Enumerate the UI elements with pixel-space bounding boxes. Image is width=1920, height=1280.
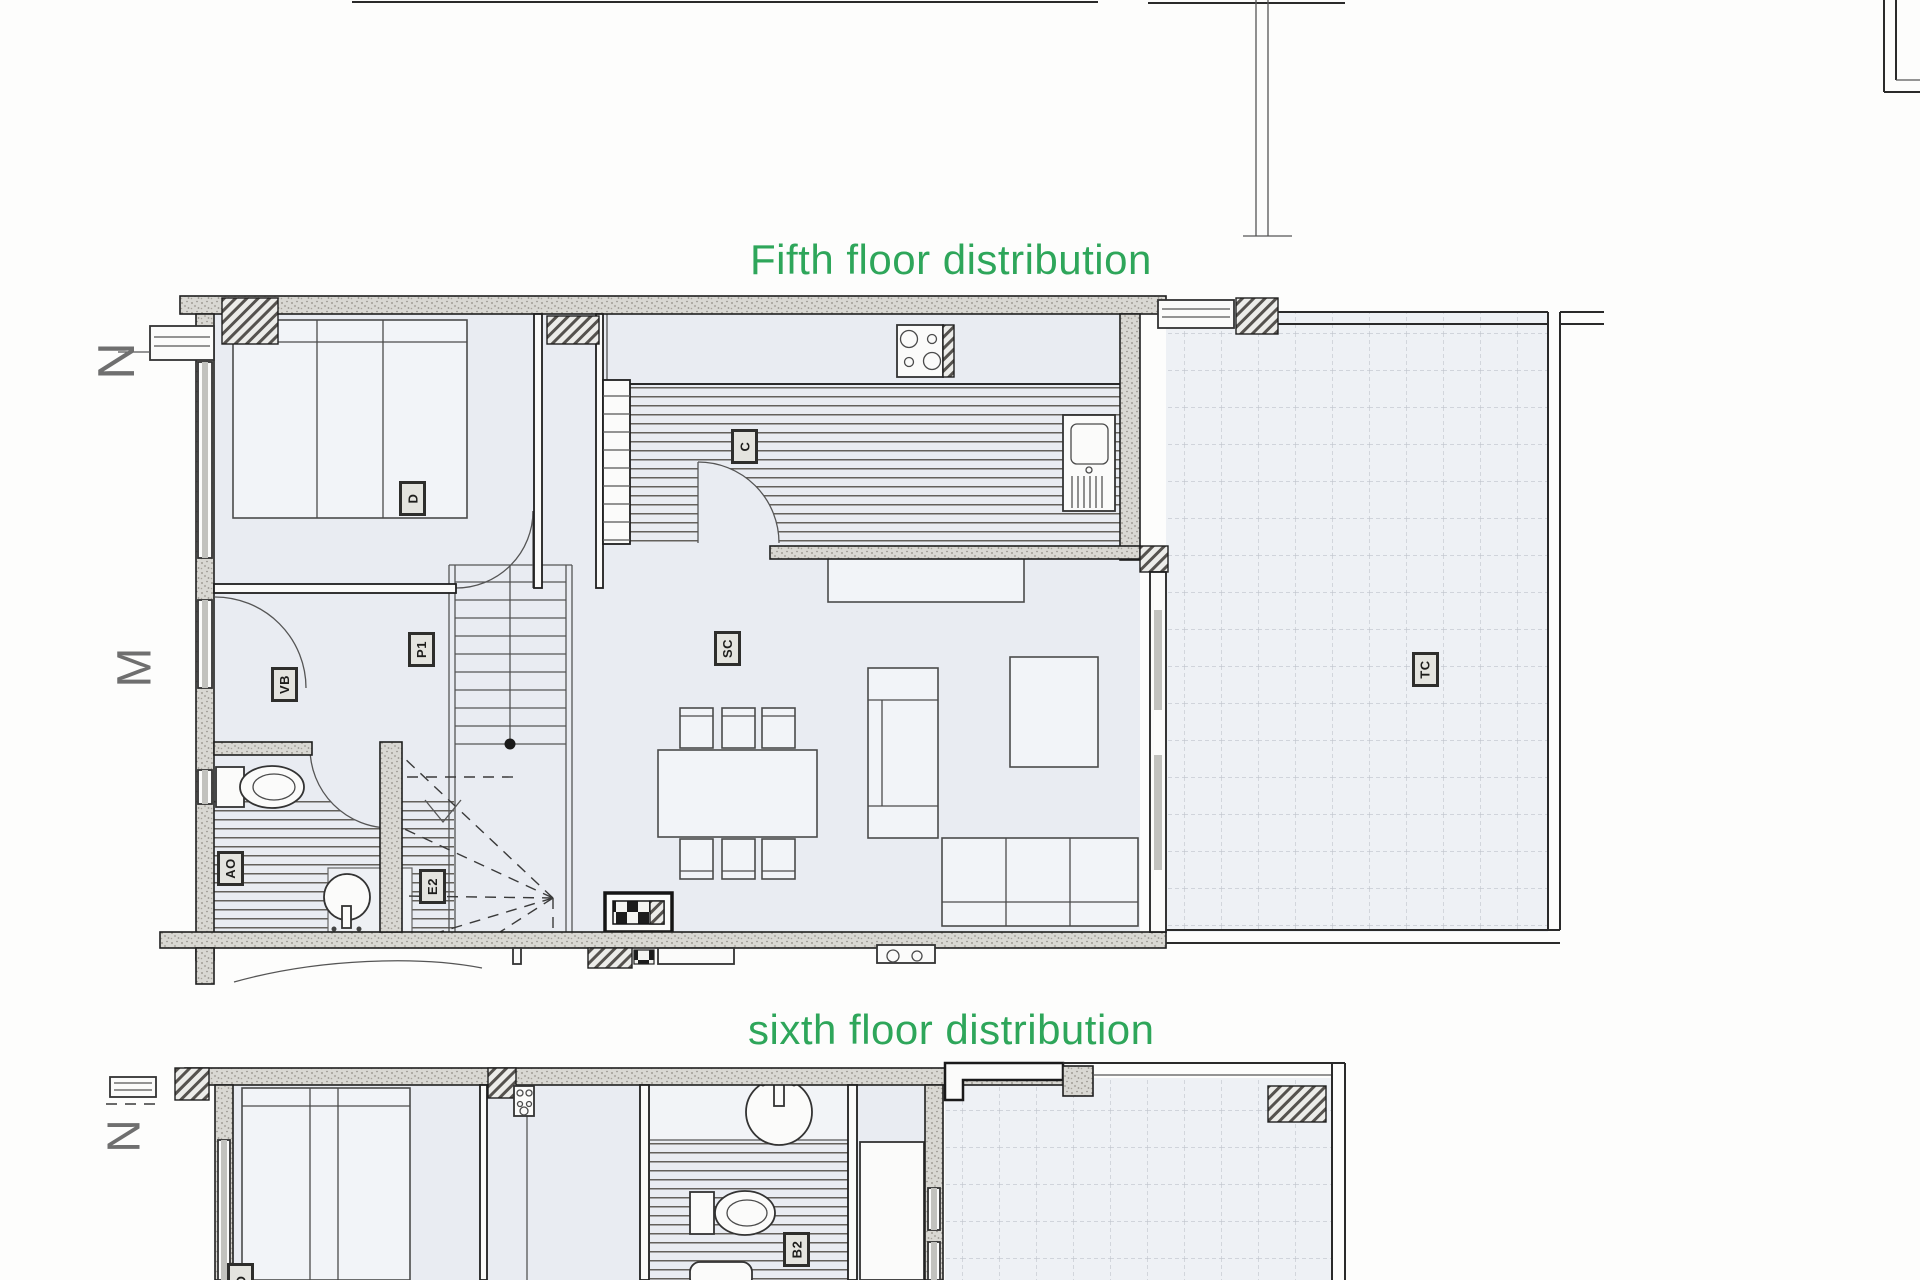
sixth-window-sill <box>106 1077 162 1104</box>
sixth-sink-icon <box>690 1262 752 1280</box>
kitchen-floor-boards <box>607 386 1120 544</box>
corridor-wall <box>596 314 603 588</box>
bedroom-bottom-wall <box>214 584 456 593</box>
sixth-floor-title: sixth floor distribution <box>748 1006 1155 1054</box>
meter-box-icon <box>514 1086 534 1116</box>
scanned-floorplan-page: Fifth floor distribution sixth floor dis… <box>0 0 1920 1280</box>
side-table <box>1010 657 1098 767</box>
terrace-window-sill <box>1158 300 1234 328</box>
sixth-bathroom <box>650 1079 848 1280</box>
kitchen-right-wall <box>1120 314 1140 560</box>
left-window-sill <box>118 326 214 360</box>
bedroom-right-wall <box>534 314 542 588</box>
sixth-floor-plan <box>106 1063 1345 1280</box>
bathroom-left-wall <box>640 1085 649 1280</box>
washing-machine-icon <box>746 1079 812 1145</box>
sixth-top-wall <box>185 1068 1075 1085</box>
corner-hatch-block <box>222 298 278 344</box>
double-bed <box>233 320 467 518</box>
fifth-top-wall <box>180 296 1166 314</box>
stairwell-wall <box>380 742 402 932</box>
sixth-bed <box>242 1088 410 1280</box>
vent-box <box>605 893 672 932</box>
entry-threshold <box>547 316 599 344</box>
sofa-three-seat <box>942 838 1138 926</box>
fifth-terrace <box>1166 312 1548 932</box>
stair-newel-post <box>505 739 516 750</box>
terrace-tiles <box>1166 312 1548 932</box>
stove-icon <box>897 325 954 377</box>
sofa-two-seat <box>868 668 938 838</box>
closet-shelves <box>603 380 630 544</box>
toilet-icon <box>216 766 304 808</box>
sideboard <box>828 558 1024 602</box>
kitchen-bottom-wall <box>770 546 1140 559</box>
fifth-floor-plan <box>118 296 1604 984</box>
dining-table-set <box>658 708 817 879</box>
cropped-plan-fragment-below-fifth <box>196 945 935 984</box>
living-east-wall <box>1150 572 1166 932</box>
fifth-bottom-wall <box>160 932 1166 948</box>
cropped-plan-fragment-top <box>352 0 1920 236</box>
fifth-floor-title: Fifth floor distribution <box>750 236 1152 284</box>
sixth-duct-closet <box>860 1142 924 1280</box>
sixth-toilet-icon <box>690 1191 775 1235</box>
floorplan-drawing <box>0 0 1920 1280</box>
bathroom-top-wall <box>214 742 312 755</box>
kitchen-sink-icon <box>1063 415 1115 511</box>
